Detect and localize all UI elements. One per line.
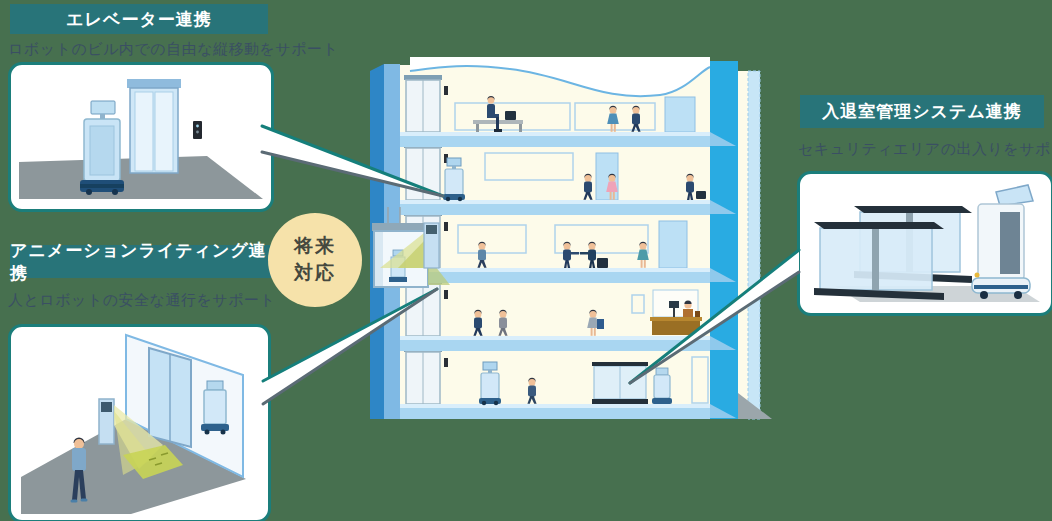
door (659, 221, 687, 268)
lighting-title-label: アニメーションライティング連携 (10, 239, 278, 285)
access-section-title: 入退室管理システム連携 (800, 95, 1044, 128)
delivery-robot (80, 101, 124, 195)
access-title-label: 入退室管理システム連携 (822, 100, 1022, 123)
lighting-illustration-box (8, 324, 271, 521)
lighting-section-description: 人とロボットの安全な通行をサポート (8, 291, 275, 310)
access-illustration-box (797, 171, 1052, 316)
future-badge: 将来 対応 (268, 213, 362, 307)
security-gate-front (814, 222, 944, 300)
right-outer-strip (748, 71, 760, 419)
elevator-scene (11, 65, 265, 203)
elevator-section-title: エレベーター連携 (10, 4, 268, 34)
future-badge-line2: 対応 (294, 260, 336, 287)
delivery-robot (972, 185, 1033, 299)
elevator-door (127, 79, 181, 173)
access-section-description: セキュリティエリアの出入りをサポート (798, 140, 1052, 159)
elevator-door (149, 348, 191, 447)
right-outer-wall (738, 71, 748, 419)
elevator-illustration-box (8, 62, 274, 212)
building-scene (370, 57, 780, 423)
lighting-scene (11, 327, 262, 514)
lighting-section-title: アニメーションライティング連携 (10, 245, 278, 278)
building-illustration (370, 57, 780, 423)
elevator-title-label: エレベーター連携 (66, 8, 212, 31)
gate-scene (800, 174, 1045, 307)
right-column (710, 61, 738, 419)
elevator-call-panel (193, 121, 202, 139)
diagram-canvas: エレベーター連携 ロボットのビル内での自由な縦移動をサポート (0, 0, 1052, 521)
door (665, 97, 695, 132)
future-badge-line1: 将来 (294, 233, 336, 260)
security-gate (592, 362, 648, 404)
projector-kiosk (99, 399, 114, 444)
elevator-section-description: ロボットのビル内での自由な縦移動をサポート (8, 40, 338, 59)
